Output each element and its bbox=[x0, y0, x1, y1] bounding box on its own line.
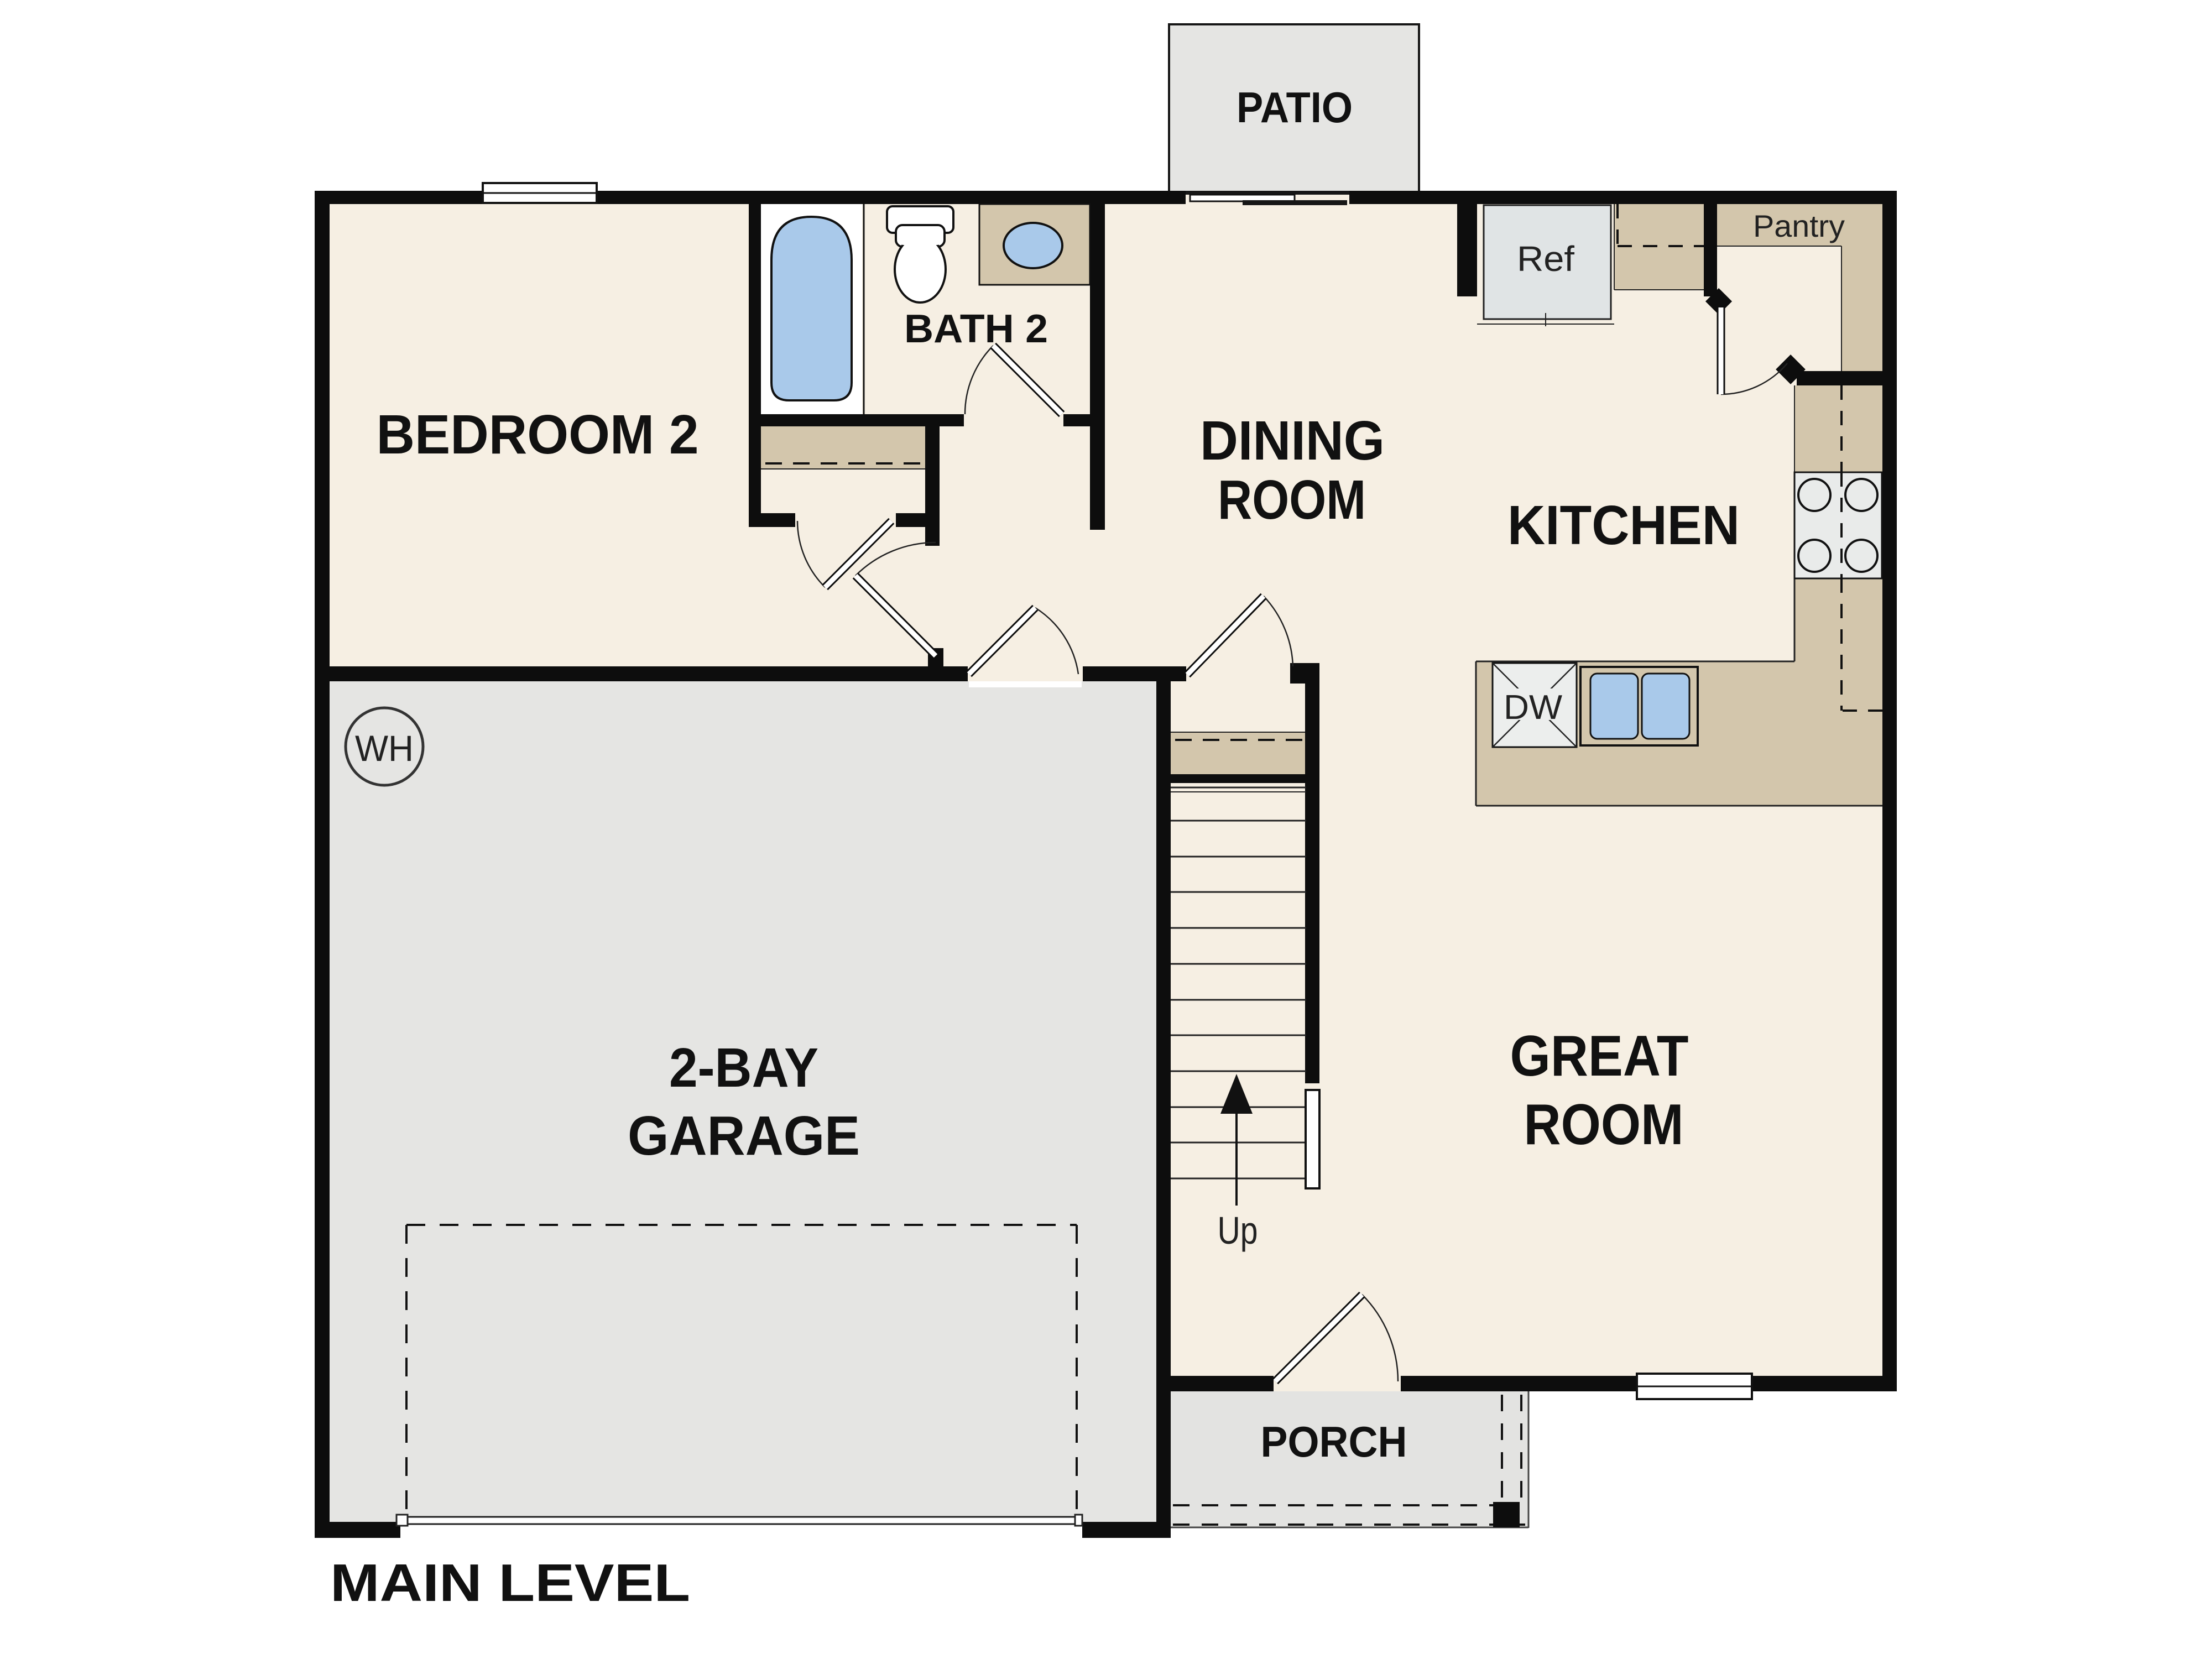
svg-text:2-BAY: 2-BAY bbox=[669, 1037, 818, 1099]
svg-text:BEDROOM 2: BEDROOM 2 bbox=[377, 404, 699, 466]
svg-text:ROOM: ROOM bbox=[1524, 1093, 1684, 1157]
svg-text:Up: Up bbox=[1218, 1209, 1258, 1252]
svg-text:WH: WH bbox=[355, 728, 414, 769]
svg-text:GARAGE: GARAGE bbox=[628, 1105, 860, 1167]
svg-text:BATH 2: BATH 2 bbox=[904, 307, 1048, 351]
svg-text:PATIO: PATIO bbox=[1237, 83, 1353, 132]
svg-text:PORCH: PORCH bbox=[1261, 1417, 1407, 1466]
svg-text:Ref: Ref bbox=[1517, 239, 1574, 279]
svg-text:ROOM: ROOM bbox=[1218, 469, 1366, 531]
svg-text:Pantry: Pantry bbox=[1753, 208, 1845, 243]
svg-text:KITCHEN: KITCHEN bbox=[1507, 494, 1740, 556]
svg-text:GREAT: GREAT bbox=[1510, 1024, 1689, 1088]
svg-text:MAIN LEVEL: MAIN LEVEL bbox=[330, 1553, 690, 1613]
svg-text:DINING: DINING bbox=[1200, 410, 1385, 472]
svg-text:DW: DW bbox=[1504, 688, 1562, 727]
